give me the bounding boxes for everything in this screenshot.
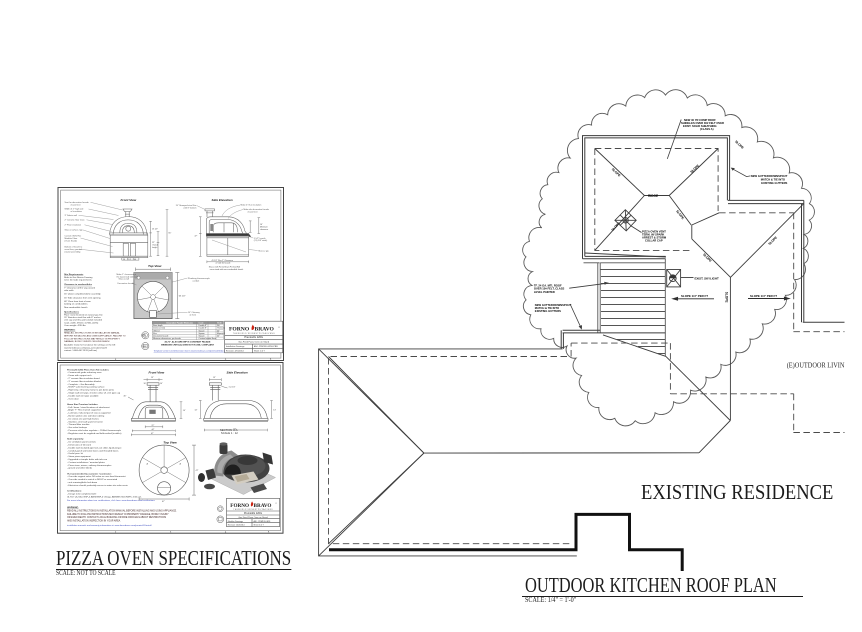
svg-text:- Oven door: - Oven door bbox=[67, 397, 79, 400]
svg-text:EXISTING GUTTERS: EXISTING GUTTERS bbox=[535, 309, 561, 313]
svg-text:65 1/2": 65 1/2" bbox=[178, 295, 185, 297]
svg-text:LEVEL PAINTED: LEVEL PAINTED bbox=[534, 290, 555, 294]
svg-text:FAILURE TO FOLLOW INSTRUCTIONS: FAILURE TO FOLLOW INSTRUCTIONS MAY RESUL… bbox=[67, 512, 169, 515]
svg-text:SLOPE: SLOPE bbox=[702, 252, 712, 262]
svg-text:(Oven Stand): (Oven Stand) bbox=[64, 239, 77, 242]
svg-text:side walls: side walls bbox=[64, 290, 74, 292]
svg-text:WARNING:: WARNING: bbox=[64, 328, 76, 331]
svg-text:- 2" ceramic fiber insulation: - 2" ceramic fiber insulation board bbox=[67, 377, 100, 380]
svg-text:- Thermal fiber insulate: - Thermal fiber insulate bbox=[67, 423, 90, 426]
svg-text:A: A bbox=[179, 462, 181, 465]
svg-text:Specifications: Specifications bbox=[64, 310, 80, 313]
svg-text:- Pressure relief valve regula: - Pressure relief valve regulator -- 110… bbox=[67, 429, 122, 432]
svg-text:- unit summing/bolts lock-down: - unit summing/bolts lock-down bbox=[67, 481, 98, 484]
svg-text:- Angle "T" Hex channel suppor: - Angle "T" Hex channel supported bbox=[67, 408, 101, 411]
svg-text:14": 14" bbox=[182, 410, 185, 412]
svg-text:SLOPE: SLOPE bbox=[734, 140, 745, 150]
svg-text:14": 14" bbox=[194, 409, 197, 411]
svg-text:Revision: 4/15/2014: Revision: 4/15/2014 bbox=[225, 350, 244, 352]
svg-text:AN#: PRM120-GRS-LPBB: AN#: PRM120-GRS-LPBB bbox=[254, 344, 278, 347]
svg-text:w/ side for facade: w/ side for facade bbox=[215, 261, 230, 264]
svg-text:Custom facade Base: Custom facade Base bbox=[198, 337, 216, 340]
svg-text:Sheet 1 of 7: Sheet 1 of 7 bbox=[254, 349, 266, 352]
svg-text:SLOPE 1/4" PER FT: SLOPE 1/4" PER FT bbox=[750, 294, 777, 298]
svg-text:www.fornobravo.com/pizza-ovens: www.fornobravo.com/pizza-ovens/premio2G bbox=[64, 346, 107, 349]
svg-text:Floor: stone brushed on natura: Floor: stone brushed on natural gas line bbox=[64, 313, 103, 316]
svg-text:10": 10" bbox=[143, 383, 146, 385]
svg-text:Sold separately:: Sold separately: bbox=[67, 437, 84, 440]
svg-text:landing on combustibles: landing on combustibles bbox=[64, 302, 88, 305]
svg-text:(CLASS A): (CLASS A) bbox=[700, 127, 714, 131]
svg-text:Dome (centre): Dome (centre) bbox=[153, 326, 165, 329]
svg-text:Premio2G 120G: Premio2G 120G bbox=[243, 512, 261, 515]
svg-text:MATCH & TIE INTO: MATCH & TIE INTO bbox=[761, 178, 785, 182]
svg-text:Home Star Premium Includes:: Home Star Premium Includes: bbox=[67, 402, 98, 405]
svg-text:- UL Listed, one port high fra: - UL Listed, one port high frames bbox=[67, 417, 100, 420]
svg-text:2″ Floor insulation: 2″ Floor insulation bbox=[64, 223, 81, 226]
svg-text:- Complete -- Gas Assembly: - Complete -- Gas Assembly bbox=[67, 382, 95, 385]
svg-text:READ ALL INSTRUCTIONS IN INSTA: READ ALL INSTRUCTIONS IN INSTALLATION MA… bbox=[64, 331, 121, 334]
svg-text:clearance: clearance bbox=[260, 228, 268, 231]
svg-text:chase liner: chase liner bbox=[70, 203, 80, 206]
svg-text:Front View: Front View bbox=[148, 370, 164, 374]
svg-text:AN#: PRM120-GRS: AN#: PRM120-GRS bbox=[253, 519, 271, 522]
svg-text:For more information about our: For more information about our certifica… bbox=[67, 499, 156, 502]
svg-text:3″ Debris wall: 3″ Debris wall bbox=[64, 214, 77, 217]
svg-text:Square: Square bbox=[198, 331, 204, 334]
svg-text:Refer to Gas Burner Drawing: Refer to Gas Burner Drawing bbox=[64, 275, 93, 278]
svg-text:47": 47" bbox=[151, 433, 154, 435]
svg-text:Gas Fired Pizza Oven on Stand: Gas Fired Pizza Oven on Stand bbox=[238, 340, 270, 343]
svg-text:19": 19" bbox=[151, 377, 154, 379]
svg-text:Premio2G 120G Pizza Oven Kit i: Premio2G 120G Pizza Oven Kit includes: bbox=[67, 368, 109, 371]
svg-text:SLOPE 1/4" PER FT: SLOPE 1/4" PER FT bbox=[681, 294, 708, 298]
svg-text:Non-combustible hearth: Non-combustible hearth bbox=[64, 306, 88, 309]
svg-text:Side Elevation: Side Elevation bbox=[211, 197, 232, 201]
svg-text:Clearance to combustibles: Clearance to combustibles bbox=[64, 282, 93, 285]
svg-text:Gas Fired Pizza Oven on Stand: Gas Fired Pizza Oven on Stand bbox=[238, 515, 268, 518]
svg-text:height: height bbox=[152, 245, 158, 248]
svg-text:MINIMUMS CRITICAL DIMS NOT IN: MINIMUMS CRITICAL DIMS NOT IN USE, COMPL… bbox=[161, 343, 214, 346]
svg-text:- ground and other blends: - ground and other blends bbox=[67, 466, 93, 469]
svg-text:SLOPE: SLOPE bbox=[767, 235, 777, 245]
svg-text:(#3) 1/8" wide): (#3) 1/8" wide) bbox=[253, 240, 267, 242]
svg-text:Minimum dimensions, per facade: Minimum dimensions, per facade bbox=[153, 337, 181, 340]
svg-text:Decorative facade: Decorative facade bbox=[153, 334, 168, 337]
svg-text:Available: Down for hot above: Available: Down for hot above fire setti… bbox=[64, 343, 116, 346]
svg-text:chase liner: chase liner bbox=[247, 210, 257, 213]
svg-text:65": 65" bbox=[168, 232, 171, 234]
svg-text:(stand assembly): (stand assembly) bbox=[64, 250, 80, 253]
svg-text:SLOPE: SLOPE bbox=[675, 209, 685, 220]
svg-text:47": 47" bbox=[194, 235, 197, 237]
svg-text:vent cap and thru-wall conduit: vent cap and thru-wall conduit included bbox=[64, 318, 103, 321]
svg-text:22": 22" bbox=[151, 425, 154, 427]
svg-text:BRAVO: BRAVO bbox=[254, 326, 274, 332]
svg-text:20" Stainless steel flue with: 20" Stainless steel flue with 8" anchor bbox=[64, 316, 101, 319]
svg-text:- Electrician should: preferab: - Electrician should: preferably secure … bbox=[67, 483, 129, 486]
svg-text:COLLAR CAP: COLLAR CAP bbox=[645, 239, 663, 243]
svg-text:Stucco surface, typ.: Stucco surface, typ. bbox=[64, 228, 83, 231]
svg-text:DAMAGE, BODILY INJURY OR EVEN: DAMAGE, BODILY INJURY OR EVEN DEATH bbox=[64, 340, 110, 343]
svg-text:SLOPE: SLOPE bbox=[611, 221, 621, 232]
svg-text:- Dimensions of tile work: - Dimensions of tile work bbox=[67, 443, 92, 446]
svg-text:47": 47" bbox=[195, 470, 198, 472]
svg-text:- Design to be completed with:: - Design to be completed with: bbox=[67, 492, 97, 495]
svg-text:- Full / dome / stand location: - Full / dome / stand locations of attac… bbox=[67, 405, 110, 408]
svg-text:- Gas valve hookups: - Gas valve hookups bbox=[67, 427, 88, 429]
svg-text:NEW GUTTER/DOWNSPOUT: NEW GUTTER/DOWNSPOUT bbox=[751, 174, 788, 178]
svg-text:A: A bbox=[146, 462, 148, 465]
svg-text:- Pizza stone, mixers, ordinar: - Pizza stone, mixers, ordinary thermoco… bbox=[67, 463, 112, 466]
svg-text:contact: 1-800-407-5119 (toll: contact: 1-800-407-5119 (toll free) bbox=[64, 349, 97, 352]
svg-text:46: 46 bbox=[134, 258, 136, 260]
svg-text:45-75", ALSO ARE IMP IS CONSTA: 45-75", ALSO ARE IMP IS CONSTANT FACADE bbox=[164, 340, 211, 343]
svg-text:- Custom installations / mount: - Custom installations / mounted plates bbox=[67, 460, 106, 463]
svg-text:- Stainless steel wall spark f: - Stainless steel wall spark for burner bbox=[67, 420, 103, 423]
svg-text:- Stone pizza equipment: - Stone pizza equipment bbox=[67, 455, 91, 458]
svg-text:10": 10" bbox=[160, 383, 163, 385]
svg-text:installation manuals and warra: installation manuals and warranty inform… bbox=[67, 524, 152, 527]
svg-text:44": 44" bbox=[151, 429, 154, 431]
svg-text:WARNING:: WARNING: bbox=[67, 506, 79, 509]
svg-text:Stucco, typ.: Stucco, typ. bbox=[258, 249, 269, 252]
svg-text:14": 14" bbox=[273, 409, 276, 411]
svg-text:T H E W O R L D ' S F I N: T H E W O R L D ' S F I N E S T P I Z Z … bbox=[232, 332, 274, 335]
svg-text:Sheet 5 of 7: Sheet 5 of 7 bbox=[253, 523, 263, 526]
svg-text:- UL ventilation panel control: - UL ventilation panel controls bbox=[67, 440, 97, 443]
svg-text:- One-side support valve: NG v: - One-side support valve: NG valve as ca… bbox=[67, 475, 126, 478]
svg-text:ETL: ETL bbox=[142, 334, 147, 337]
svg-text:Top View: Top View bbox=[163, 440, 177, 444]
svg-text:with 8" bottom: with 8" bottom bbox=[183, 206, 196, 209]
svg-text:to be 10 inside requirements: to be 10 inside requirements bbox=[64, 278, 93, 281]
svg-text:Revision: 10/2/2014: Revision: 10/2/2014 bbox=[227, 524, 244, 526]
svg-text:Stucco wall: Stucco wall bbox=[118, 277, 129, 280]
svg-text:oven stand with non-combustibl: oven stand with non-combustible hearth bbox=[209, 268, 242, 271]
svg-text:Certifications:: Certifications: bbox=[67, 489, 82, 492]
svg-text:- Upgraded or tempfix boiler w: - Upgraded or tempfix boiler with tele-c… bbox=[67, 458, 108, 461]
svg-text:- Dome with support arch: - Dome with support arch bbox=[67, 374, 92, 377]
svg-text:- Conduit-patch wall valve box: - Conduit-patch wall valve boxes and thr… bbox=[67, 449, 119, 452]
svg-text:36: 36 bbox=[122, 258, 124, 260]
svg-text:Cook. width: 47341 x 47341, (4: Cook. width: 47341 x 47341, (40%) bbox=[64, 321, 98, 324]
svg-text:EXIST. SKYLIGHT: EXIST. SKYLIGHT bbox=[695, 277, 719, 281]
svg-text:48" Clear from front of oven: 48" Clear from front of oven bbox=[64, 299, 92, 302]
svg-text:1'-0 1/2": 1'-0 1/2" bbox=[228, 386, 235, 388]
svg-text:Site Requirements: Site Requirements bbox=[64, 272, 84, 275]
svg-text:FORNO: FORNO bbox=[229, 326, 250, 332]
svg-text:IT-recommended by customer / c: IT-recommended by customer / contractor: bbox=[67, 472, 112, 475]
svg-text:- One-side conduit to switch i: - One-side conduit to switch in NG/LP or… bbox=[67, 478, 118, 481]
svg-text:FOLLOW INSTRUCTIONS MAY RESULT: FOLLOW INSTRUCTIONS MAY RESULT IN PROPER… bbox=[64, 337, 120, 340]
svg-text:AND INSTALLATION INSPECTION IN: AND INSTALLATION INSPECTION IN YOUR AREA… bbox=[67, 519, 121, 522]
svg-text:conduit: conduit bbox=[192, 279, 199, 282]
svg-text:OR EVEN DEATH. CONTACT LOCAL B: OR EVEN DEATH. CONTACT LOCAL BUILDING OR… bbox=[67, 516, 166, 519]
svg-text:16" above completed dome assem: 16" above completed dome assembly bbox=[64, 292, 101, 295]
svg-text:SCALE 1 : 12: SCALE 1 : 12 bbox=[220, 431, 237, 435]
svg-text:Decorative Facade Minimums: Decorative Facade Minimums bbox=[166, 321, 193, 324]
svg-text:Base depth: Base depth bbox=[153, 324, 163, 327]
svg-text:Top View: Top View bbox=[148, 263, 162, 267]
svg-text:SLOPE: SLOPE bbox=[689, 164, 700, 174]
svg-text:1/2: 1/2 bbox=[128, 258, 131, 260]
svg-text:- High temp. refractory mortar: - High temp. refractory mortar to join d… bbox=[67, 388, 115, 391]
svg-text:NSF: NSF bbox=[142, 346, 147, 348]
svg-text:- Double wall vent pipe availa: - Double wall vent pipe available bbox=[67, 394, 99, 397]
svg-text:EXISTING GUTTERS: EXISTING GUTTERS bbox=[761, 181, 787, 185]
svg-text:2″ Ceramic floor insul.: 2″ Ceramic floor insul. bbox=[64, 218, 85, 221]
svg-text:Premio2G 120G: Premio2G 120G bbox=[244, 335, 263, 339]
svg-text:Offered: Offered bbox=[153, 329, 159, 332]
svg-text:w/ insulation: w/ insulation bbox=[70, 210, 82, 213]
svg-text:Front View: Front View bbox=[120, 197, 136, 201]
svg-text:7" Clearance all the way aroun: 7" Clearance all the way around bbox=[64, 286, 96, 289]
svg-text:Installation Drawings: Installation Drawings bbox=[225, 344, 243, 347]
svg-text:Square: Square bbox=[198, 329, 204, 332]
svg-text:- NG/LP valve burning cooking: - NG/LP valve burning cooking surface bbox=[67, 385, 105, 388]
svg-text:- Burner ignition unit, wall d: - Burner ignition unit, wall door cablin… bbox=[67, 414, 105, 417]
svg-text:44": 44" bbox=[217, 335, 220, 337]
svg-text:SLOPE: SLOPE bbox=[725, 292, 729, 303]
svg-text:Side Elevation: Side Elevation bbox=[226, 370, 247, 374]
svg-text:READ ALL INSTRUCTIONS IN INSTA: READ ALL INSTRUCTIONS IN INSTALLATION MA… bbox=[67, 509, 177, 512]
svg-text:- Laminate, induced pair of st: - Laminate, induced pair of stucco-suppo… bbox=[67, 411, 111, 414]
svg-text:Oven weight: 4230 lbs: Oven weight: 4230 lbs bbox=[64, 323, 87, 326]
svg-text:at front: at front bbox=[189, 313, 196, 316]
svg-text:- Double wall insulated pipe l: - Double wall insulated pipe lock-out sl… bbox=[67, 446, 122, 449]
svg-text:Make 4" flue insulation: Make 4" flue insulation bbox=[240, 203, 262, 206]
svg-text:16" Side clearance from vent o: 16" Side clearance from vent opening bbox=[64, 296, 101, 299]
svg-text:- 3" ceramic fiber insulation: - 3" ceramic fiber insulation blanket bbox=[67, 379, 101, 382]
svg-text:SLOPE: SLOPE bbox=[611, 167, 622, 177]
svg-text:(E)OUTDOOR LIVIN: (E)OUTDOOR LIVIN bbox=[787, 360, 845, 369]
svg-text:45°: 45° bbox=[123, 395, 126, 397]
svg-text:41 1/2" Plus 2" Clearance: 41 1/2" Plus 2" Clearance bbox=[211, 259, 233, 262]
svg-text:Template Center Line/Dimension: Template Center Line/Dimension sheet: ww… bbox=[153, 349, 224, 352]
svg-text:Plumbing thermocouple: Plumbing thermocouple bbox=[187, 276, 210, 279]
svg-text:- Regulator must be supplied a: - Regulator must be supplied and field-v… bbox=[67, 431, 121, 434]
svg-text:Modular Drawings: Modular Drawings bbox=[227, 519, 242, 522]
svg-text:- Commercial grade refractory: - Commercial grade refractory oven bbox=[67, 371, 102, 374]
svg-text:23 1/2": 23 1/2" bbox=[152, 228, 158, 230]
svg-text:Square: Square bbox=[198, 334, 204, 337]
svg-text:RIDGE: RIDGE bbox=[648, 194, 658, 198]
svg-text:19": 19" bbox=[213, 377, 216, 379]
svg-text:UL737, UL2162, NSF-4, ANSI/NSF: UL737, UL2162, NSF-4, ANSI/NSF-4 Omega, … bbox=[67, 495, 142, 498]
svg-text:47": 47" bbox=[162, 501, 165, 503]
svg-text:BEFORE INSTALLING AND USING AP: BEFORE INSTALLING AND USING APPLIANCE. F… bbox=[64, 334, 126, 337]
svg-text:T H E W O R L D ' S F I N: T H E W O R L D ' S F I N E S T P I Z Z … bbox=[233, 507, 273, 510]
svg-text:- Useful prox. kit: - Useful prox. kit bbox=[67, 452, 83, 455]
svg-text:- Single wall vent pipe, chrom: - Single wall vent pipe, chrome collar, … bbox=[67, 391, 121, 394]
